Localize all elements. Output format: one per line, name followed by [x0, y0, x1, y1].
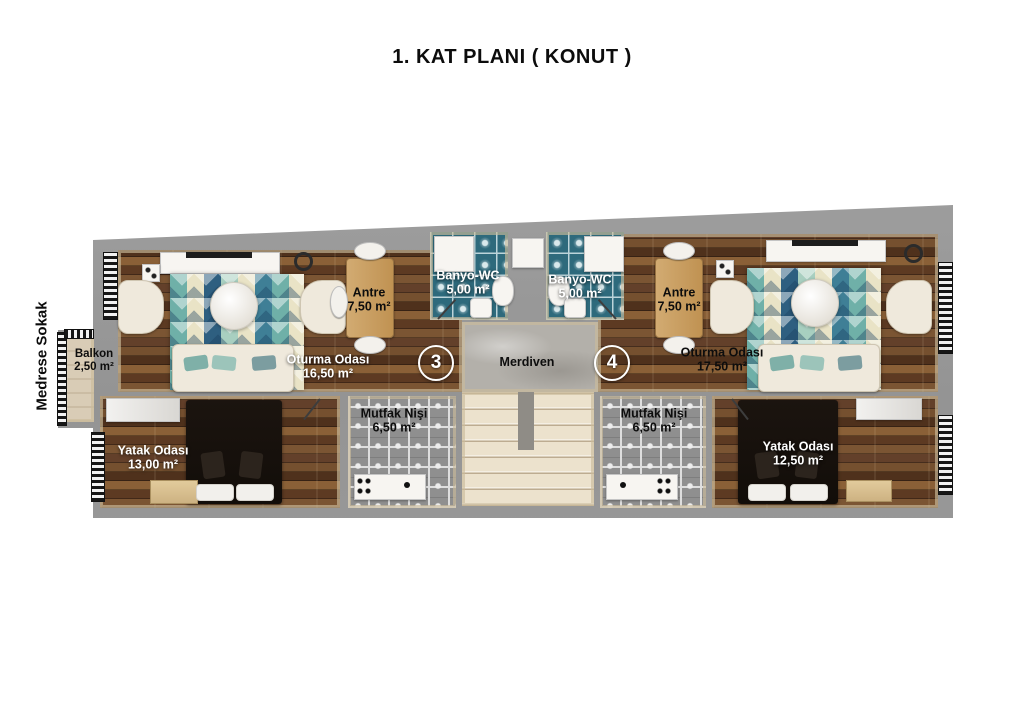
bed-left-pillow-1: [196, 484, 234, 501]
room-area: 2,50 m²: [74, 361, 114, 374]
bed-left-pillow-dark-2: [238, 451, 263, 479]
room-area: 7,50 m²: [657, 300, 700, 314]
room-area: 12,50 m²: [763, 454, 834, 468]
room-area: 7,50 m²: [347, 300, 390, 314]
room-label-banyo-right: Banyo-WC 5,00 m²: [548, 273, 611, 302]
sofa-pillow-right-3: [837, 355, 862, 371]
stove-left: [356, 476, 372, 496]
page-title: 1. KAT PLANI ( KONUT ): [392, 46, 632, 69]
unit-badge-4: 4: [594, 345, 630, 381]
room-label-mutfak-left: Mutfak Nişi 6,50 m²: [361, 407, 428, 436]
sofa-pillow-left-3: [251, 355, 276, 371]
room-area: 16,50 m²: [287, 367, 370, 381]
bed-left-pillow-dark-1: [200, 451, 225, 480]
sofa-pillow-right-2: [799, 355, 824, 371]
wardrobe-left: [106, 398, 180, 422]
shower-right: [584, 236, 624, 272]
stairs-name: Merdiven: [500, 355, 555, 369]
window-bedroom-right: [938, 415, 953, 495]
unit-number: 3: [431, 352, 442, 374]
room-name: Banyo-WC: [548, 273, 611, 287]
dining-chair-left-side: [330, 286, 348, 318]
stove-right: [656, 476, 672, 496]
unit-number: 4: [607, 352, 618, 374]
street-label: Medrese Sokak: [34, 301, 51, 410]
room-name: Antre: [657, 286, 700, 300]
stair-void: [518, 392, 534, 450]
room-label-oturma-right: Oturma Odası 17,50 m²: [681, 346, 764, 375]
lamp-left: [294, 252, 313, 271]
coffee-table-left: [210, 282, 258, 330]
balcony-railing-top: [64, 329, 94, 339]
room-label-yatak-left: Yatak Odası 13,00 m²: [118, 444, 189, 473]
unit-badge-3: 3: [418, 345, 454, 381]
wardrobe-right: [856, 398, 922, 420]
room-name: Mutfak Nişi: [361, 407, 428, 421]
room-label-balkon: Balkon 2,50 m²: [74, 348, 114, 374]
room-name: Banyo-WC: [436, 269, 499, 283]
room-name: Antre: [347, 286, 390, 300]
room-area: 5,00 m²: [436, 283, 499, 297]
room-name: Oturma Odası: [287, 353, 370, 367]
window-living-right: [938, 262, 953, 354]
dining-chair-left-top: [354, 242, 386, 260]
room-area: 17,50 m²: [681, 360, 764, 374]
armchair-right-a: [710, 280, 754, 334]
room-area: 5,00 m²: [548, 287, 611, 301]
room-name: Mutfak Nişi: [621, 407, 688, 421]
tv-right: [792, 240, 858, 246]
dining-chair-right-top: [663, 242, 695, 260]
window-bedroom-left: [91, 432, 105, 502]
side-table-right: [716, 260, 734, 278]
bed-left-pillow-2: [236, 484, 274, 501]
room-label-yatak-right: Yatak Odası 12,50 m²: [763, 440, 834, 469]
room-label-mutfak-right: Mutfak Nişi 6,50 m²: [621, 407, 688, 436]
bed-right-pillow-2: [790, 484, 828, 501]
bed-right-pillow-1: [748, 484, 786, 501]
room-label-oturma-left: Oturma Odası 16,50 m²: [287, 353, 370, 382]
sofa-pillow-left-2: [211, 355, 236, 371]
room-area: 6,50 m²: [361, 421, 428, 435]
bench-right: [846, 480, 892, 502]
room-name: Yatak Odası: [763, 440, 834, 454]
room-label-banyo-left: Banyo-WC 5,00 m²: [436, 269, 499, 298]
coffee-table-right: [791, 279, 839, 327]
room-name: Oturma Odası: [681, 346, 764, 360]
room-name: Yatak Odası: [118, 444, 189, 458]
balcony-railing: [57, 332, 67, 426]
armchair-left-a: [118, 280, 164, 334]
stairs-label: Merdiven: [500, 355, 555, 369]
window-living-left: [103, 252, 118, 320]
room-area: 6,50 m²: [621, 421, 688, 435]
room-name: Balkon: [74, 348, 114, 361]
armchair-right-b: [886, 280, 932, 334]
room-area: 13,00 m²: [118, 458, 189, 472]
tv-left: [186, 252, 252, 258]
dining-chair-left-bottom: [354, 336, 386, 354]
lamp-right: [904, 244, 923, 263]
bench-left: [150, 480, 198, 504]
room-label-antre-right: Antre 7,50 m²: [657, 286, 700, 315]
light-shaft: [512, 238, 544, 268]
floor-plan-page: 1. KAT PLANI ( KONUT ) Medrese Sokak: [0, 0, 1024, 724]
sink-kitchen-left: [404, 482, 410, 488]
sink-kitchen-right: [620, 482, 626, 488]
toilet-left: [470, 298, 492, 318]
shower-left: [434, 236, 474, 272]
room-label-antre-left: Antre 7,50 m²: [347, 286, 390, 315]
